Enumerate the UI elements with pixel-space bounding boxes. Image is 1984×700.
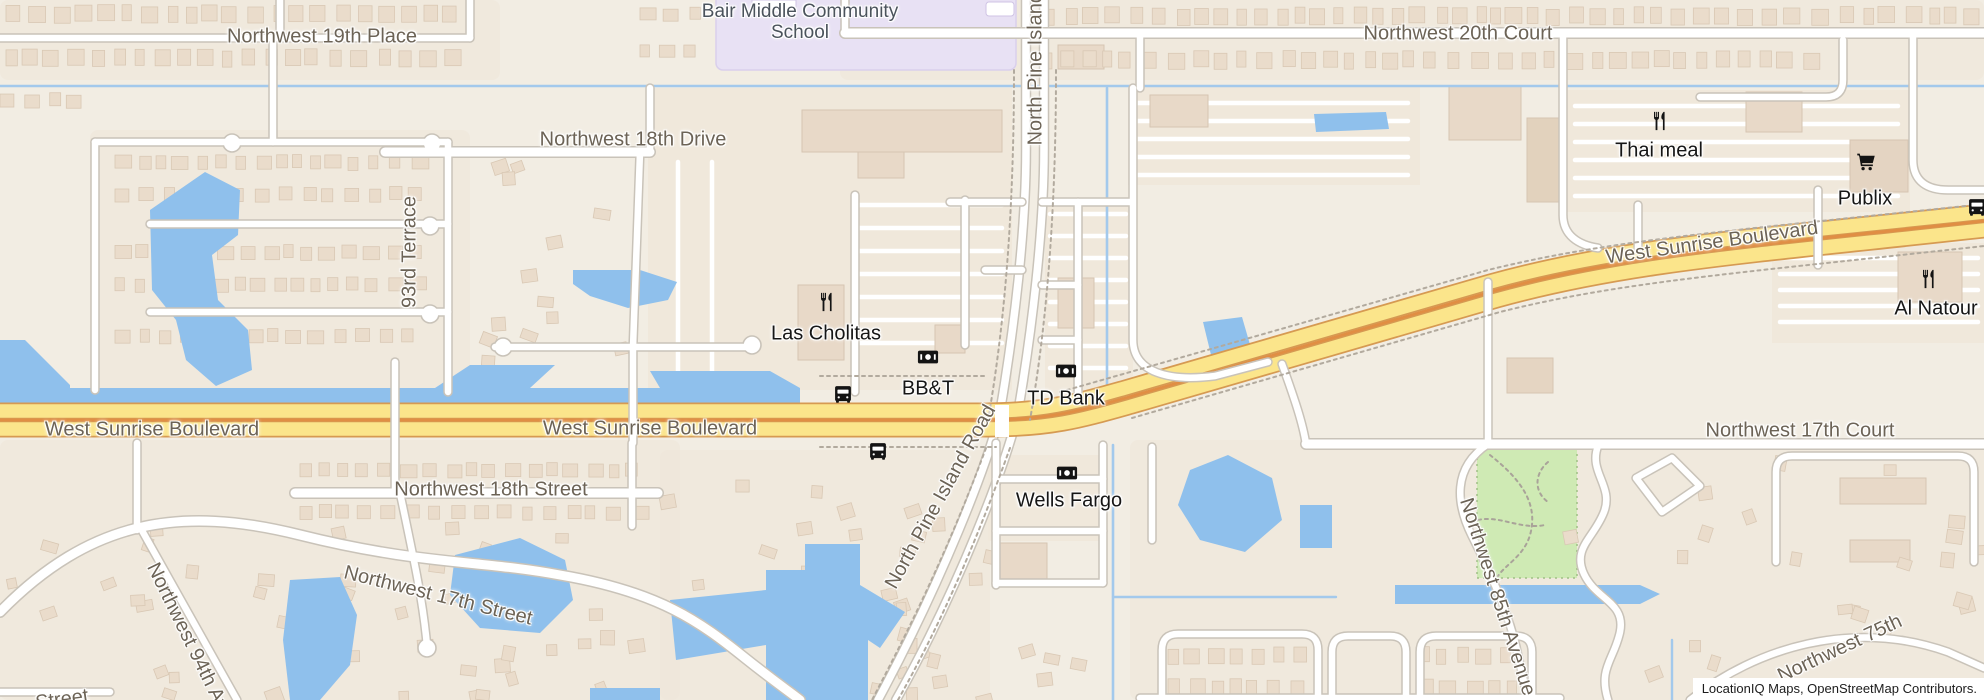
poi-label-las-cholitas[interactable]: Las Cholitas	[771, 323, 881, 346]
poi-label-wells-fargo[interactable]: Wells Fargo	[1016, 490, 1122, 513]
street-label-street-fragment: Street	[34, 685, 90, 700]
poi-label-td-bank[interactable]: TD Bank	[1027, 388, 1105, 411]
street-label-nw-17th-court: Northwest 17th Court	[1706, 420, 1895, 443]
map-attribution[interactable]: LocationIQ Maps, OpenStreetMap Contribut…	[1693, 678, 1984, 700]
street-label-nw-18th-drive: Northwest 18th Drive	[540, 129, 727, 152]
map-labels-layer: Northwest 19th PlaceNorthwest 20th Court…	[0, 0, 1984, 700]
banknote-icon[interactable]	[917, 350, 939, 365]
banknote-icon[interactable]	[1055, 364, 1077, 379]
cart-icon[interactable]	[1856, 152, 1877, 172]
street-label-north-pine-island-road-diagonal: North Pine Island Road	[881, 401, 1001, 593]
street-label-93rd-terrace: 93rd Terrace	[399, 196, 422, 308]
restaurant-icon[interactable]	[1649, 111, 1669, 131]
street-label-west-sunrise-boulevard-mid: West Sunrise Boulevard	[543, 418, 757, 441]
street-label-west-sunrise-boulevard-right: West Sunrise Boulevard	[1604, 217, 1819, 270]
banknote-icon[interactable]	[1056, 466, 1078, 481]
restaurant-icon[interactable]	[816, 292, 836, 312]
bus-icon	[1968, 198, 1984, 217]
poi-label-publix[interactable]: Publix	[1838, 188, 1892, 211]
street-label-nw-75th: Northwest 75th	[1774, 610, 1906, 688]
street-label-north-pine-island-road-top: North Pine Island Road	[1025, 0, 1048, 145]
street-label-nw-18th-street: Northwest 18th Street	[394, 479, 587, 502]
street-label-west-sunrise-boulevard-left: West Sunrise Boulevard	[45, 419, 259, 442]
poi-label-al-natour[interactable]: Al Natour	[1894, 298, 1977, 321]
street-label-nw-17th-street: Northwest 17th Street	[341, 561, 534, 630]
poi-label-bbt[interactable]: BB&T	[902, 378, 954, 401]
street-label-nw-19th-place: Northwest 19th Place	[227, 26, 417, 49]
restaurant-icon[interactable]	[1918, 269, 1938, 289]
map-canvas[interactable]: Northwest 19th PlaceNorthwest 20th Court…	[0, 0, 1984, 700]
school-area-label: Bair Middle Community School	[690, 1, 910, 43]
bus-icon	[834, 385, 853, 404]
street-label-nw-20th-court: Northwest 20th Court	[1364, 23, 1553, 46]
street-label-nw-94th-avenue: Northwest 94th Avenue	[141, 559, 252, 700]
street-label-nw-85th-avenue: Northwest 85th Avenue	[1454, 495, 1540, 698]
poi-label-thai-meal[interactable]: Thai meal	[1615, 140, 1703, 163]
bus-icon	[869, 442, 888, 461]
